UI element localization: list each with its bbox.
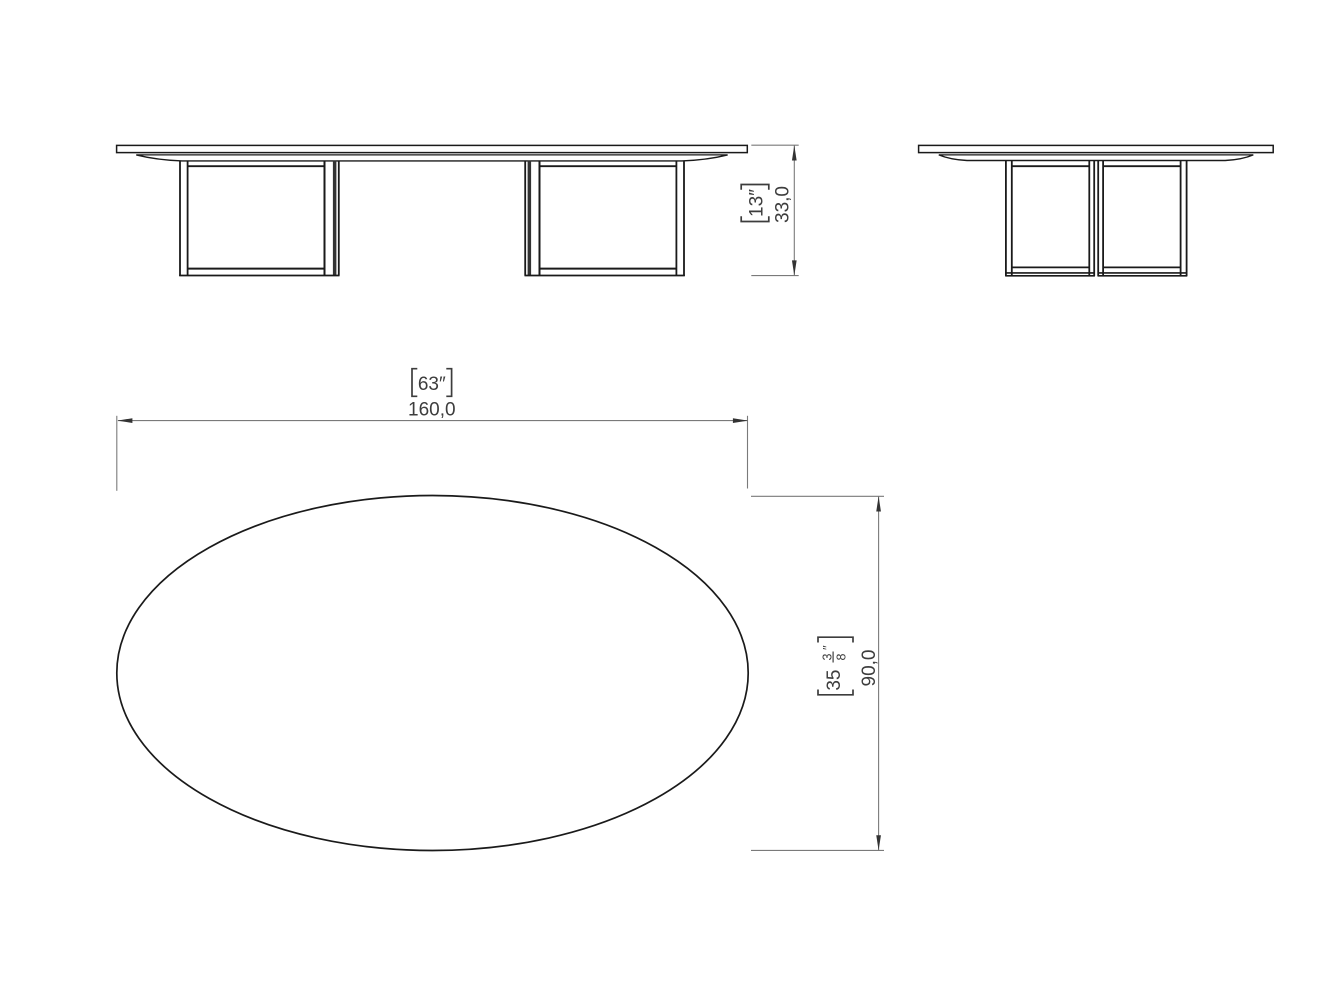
svg-text:63″: 63″: [418, 374, 446, 395]
svg-text:33,0: 33,0: [773, 186, 794, 223]
svg-text:3: 3: [821, 653, 835, 660]
svg-text:160,0: 160,0: [408, 400, 456, 421]
svg-text:13″: 13″: [747, 189, 768, 217]
svg-text:″: ″: [820, 645, 835, 650]
svg-text:8: 8: [835, 653, 849, 660]
svg-text:35: 35: [824, 670, 845, 691]
svg-text:90,0: 90,0: [859, 650, 880, 687]
